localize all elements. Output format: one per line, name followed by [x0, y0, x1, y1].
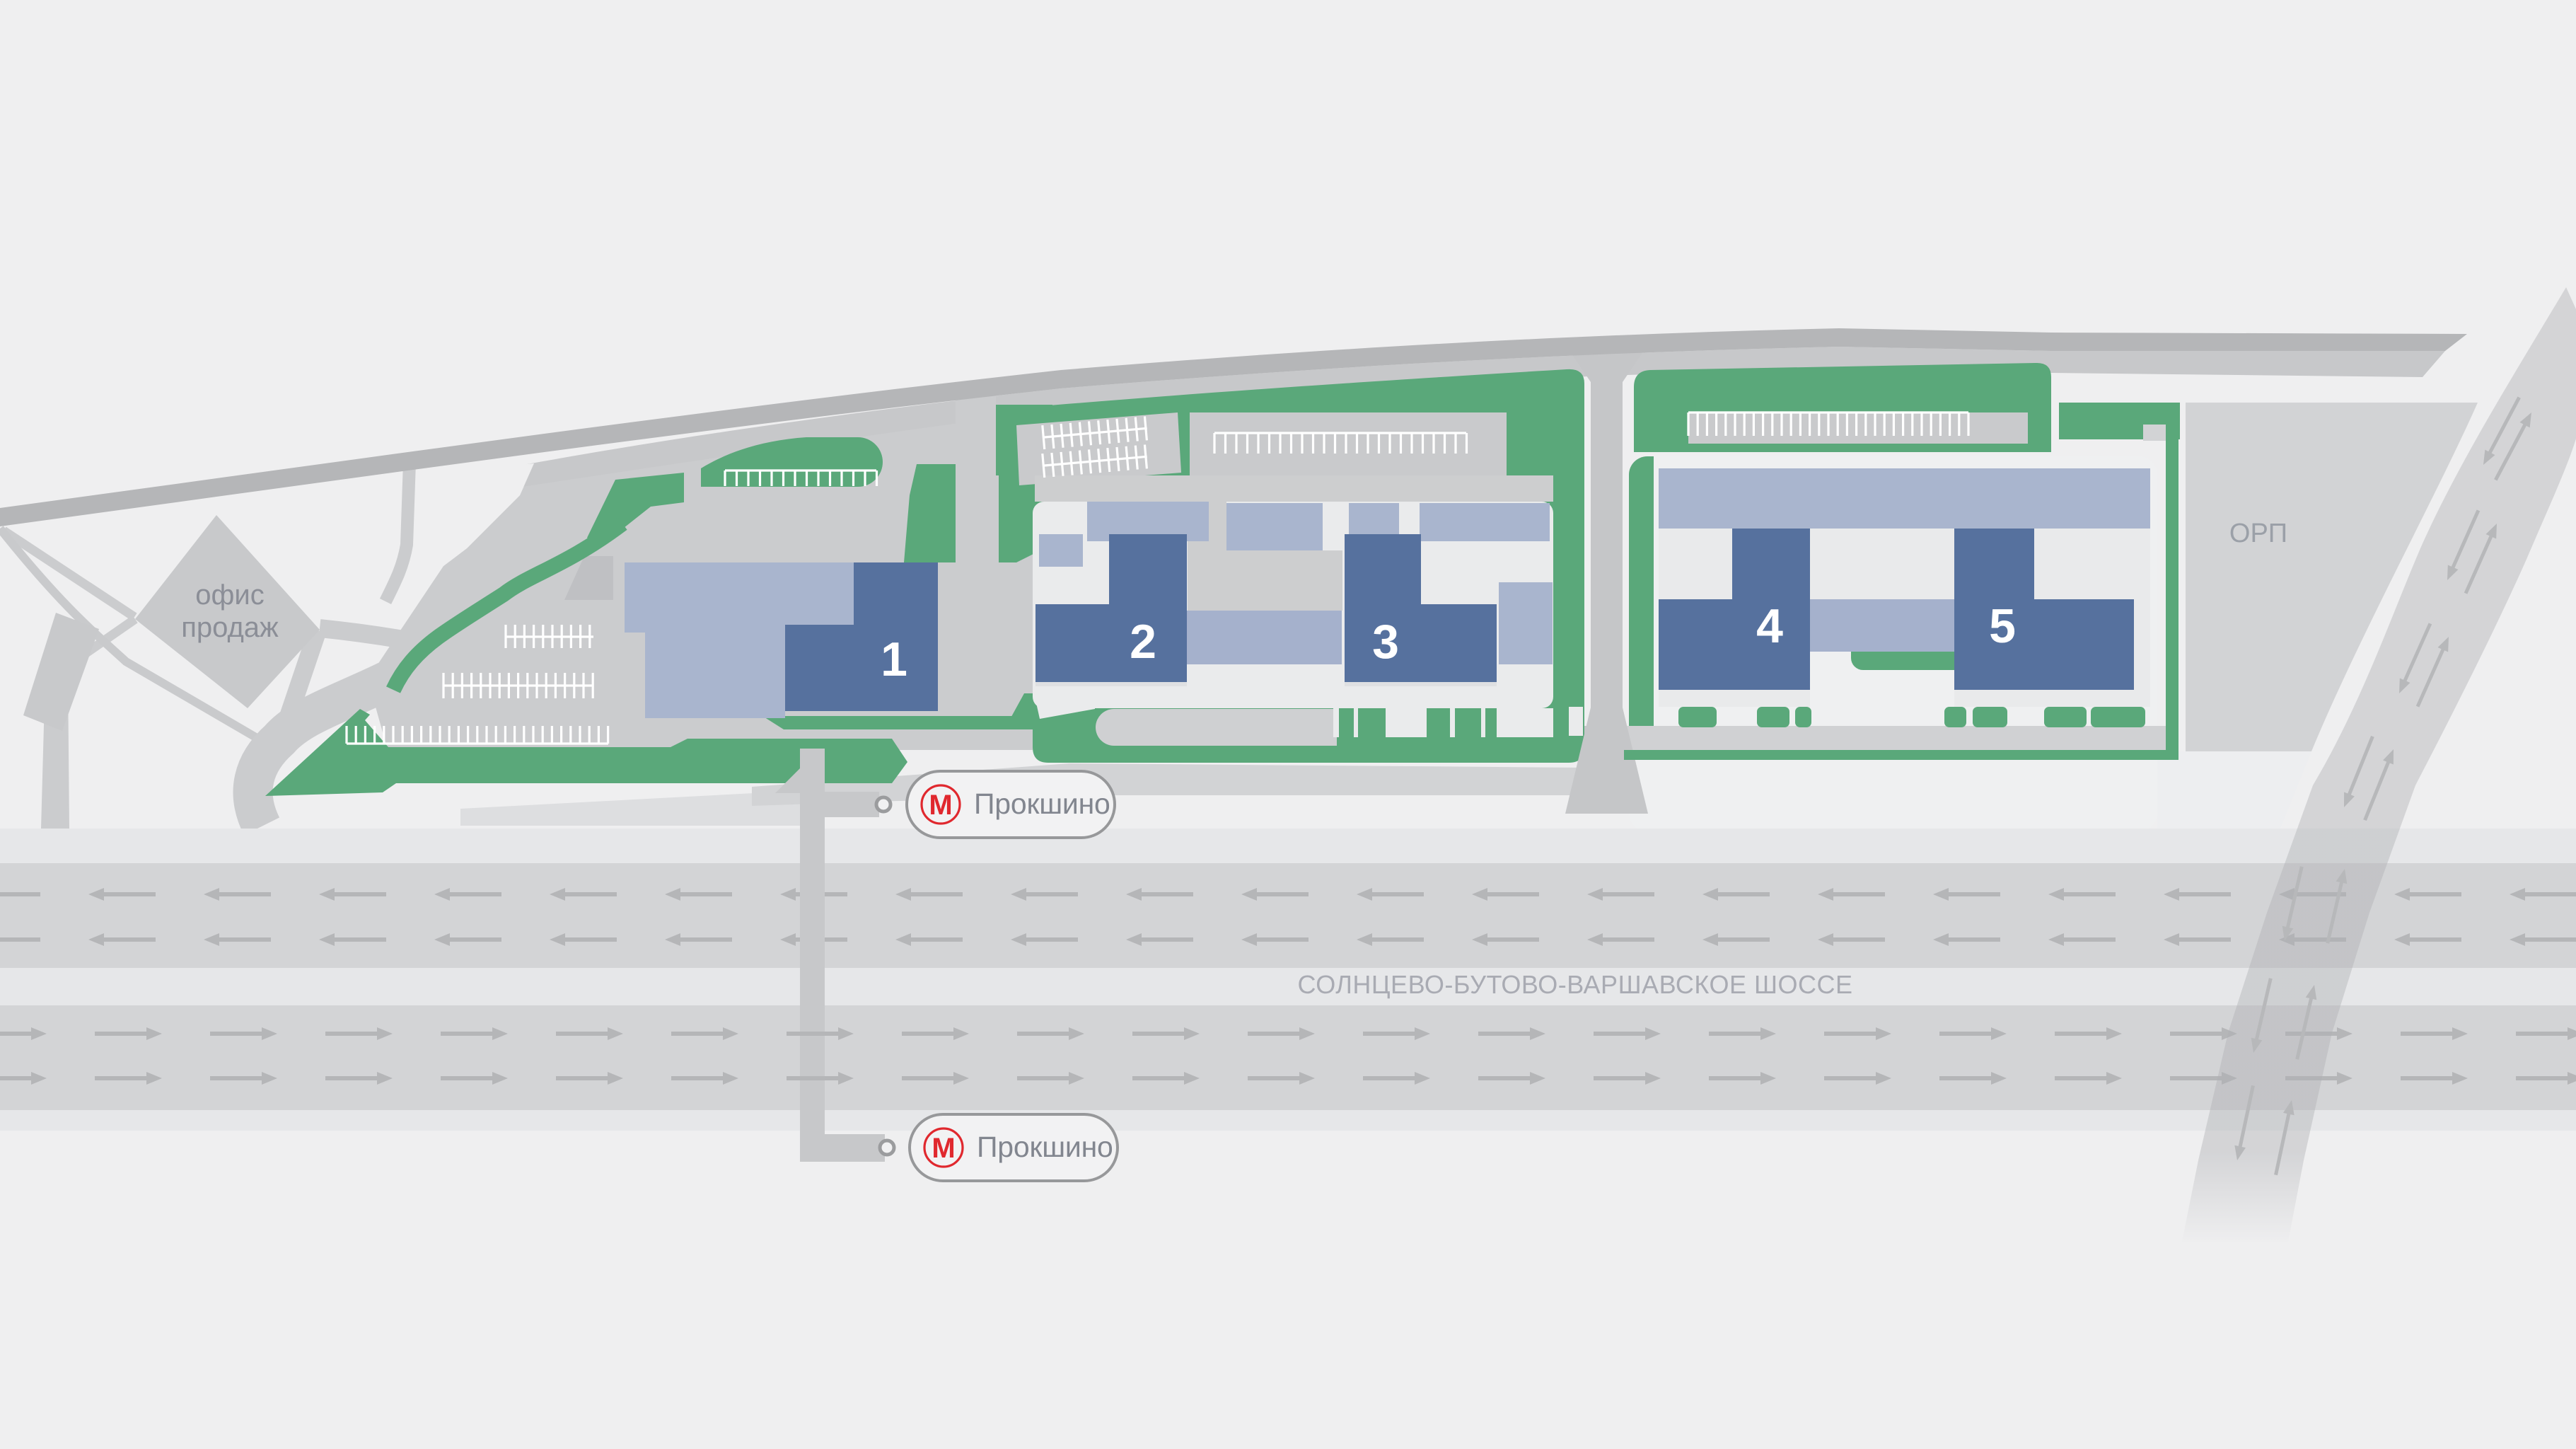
- svg-text:1: 1: [881, 633, 907, 686]
- svg-text:4: 4: [1756, 599, 1783, 653]
- svg-text:5: 5: [1989, 599, 2016, 653]
- svg-text:СОЛНЦЕВО-БУТОВО-ВАРШАВСКОЕ ШОС: СОЛНЦЕВО-БУТОВО-ВАРШАВСКОЕ ШОССЕ: [1298, 970, 1853, 999]
- svg-text:продаж: продаж: [181, 612, 279, 643]
- svg-text:2: 2: [1130, 615, 1156, 669]
- svg-text:ОРП: ОРП: [2229, 519, 2287, 548]
- svg-text:М: М: [932, 1133, 955, 1164]
- svg-text:Прокшино: Прокшино: [977, 1131, 1113, 1163]
- svg-text:Прокшино: Прокшино: [974, 787, 1110, 820]
- svg-text:М: М: [929, 790, 952, 821]
- svg-text:офис: офис: [195, 579, 265, 611]
- svg-text:3: 3: [1372, 615, 1399, 669]
